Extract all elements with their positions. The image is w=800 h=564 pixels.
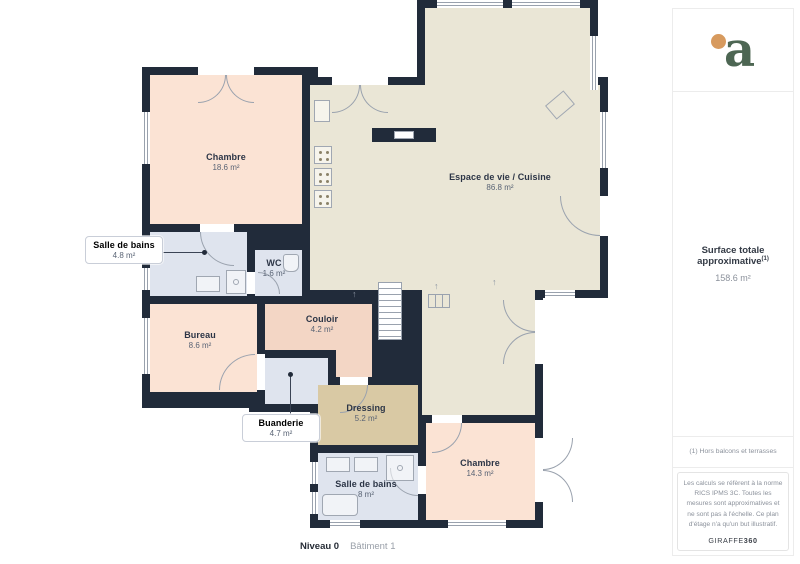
window	[310, 462, 318, 484]
door-arc	[543, 470, 573, 502]
room-area: 5.2 m²	[346, 414, 385, 423]
door-opening	[332, 77, 388, 85]
room-name: Chambre	[206, 152, 246, 162]
door-opening	[257, 354, 265, 390]
room-name: Espace de vie / Cuisine	[449, 172, 551, 182]
door-opening	[535, 438, 543, 502]
disclaimer-section: Les calculs se réfèrent à la norme RICS …	[673, 467, 793, 555]
surface-title-superscript: (1)	[762, 256, 769, 262]
room-label-couloir: Couloir 4.2 m²	[306, 314, 338, 334]
room-area: 18.6 m²	[206, 163, 246, 172]
room-name: WC	[263, 258, 286, 268]
footnote: (1) Hors balcons et terrasses	[673, 436, 793, 467]
arrow-up-icon: ↑	[492, 278, 497, 287]
door-opening	[200, 224, 234, 232]
room-area: 14.3 m²	[460, 469, 500, 478]
window	[330, 520, 360, 528]
callout-salle-de-bains-1: Salle de bains 4.8 m²	[85, 236, 163, 264]
stove-icon	[314, 168, 332, 186]
steps	[428, 294, 450, 308]
room-area: 4.8 m²	[93, 251, 155, 260]
room-name: Buanderie	[250, 418, 312, 428]
agency-logo: a	[673, 9, 793, 92]
door-opening	[247, 272, 255, 294]
room-label-wc: WC 1.6 m²	[263, 258, 286, 278]
surface-total-title: Surface totale approximative(1)	[679, 245, 787, 267]
stove-icon	[314, 190, 332, 208]
room-label-salle-de-bains-2: Salle de bains 8 m²	[335, 479, 396, 499]
window	[142, 112, 150, 164]
callout-leader	[158, 252, 204, 253]
kitchen-sink-icon	[314, 100, 330, 122]
room-name: Couloir	[306, 314, 338, 324]
window	[600, 112, 608, 168]
brand-name: GIRAFFE	[708, 536, 743, 545]
info-sidebar: a Surface totale approximative(1) 158.6 …	[672, 8, 794, 556]
door-opening	[418, 466, 426, 494]
staircase	[378, 282, 402, 340]
callout-buanderie: Buanderie 4.7 m²	[242, 414, 320, 442]
building-label: Bâtiment 1	[350, 541, 395, 552]
plan-footer: Niveau 0 Bâtiment 1	[300, 541, 396, 552]
room-label-espace-de-vie: Espace de vie / Cuisine 86.8 m²	[449, 172, 551, 192]
logo-mark: a	[711, 26, 755, 74]
room-area: 4.7 m²	[250, 429, 312, 438]
island-sink-icon	[394, 131, 414, 139]
window	[142, 318, 150, 374]
arrow-up-icon: ↑	[434, 282, 439, 291]
window	[142, 268, 150, 290]
room-name: Chambre	[460, 458, 500, 468]
room-name: Salle de bains	[93, 240, 155, 250]
room-name: Bureau	[184, 330, 216, 340]
giraffe360-logo: GIRAFFE360	[683, 536, 783, 545]
surface-total-value: 158.6 m²	[715, 273, 751, 283]
shower-drain-icon	[397, 465, 403, 471]
room-area: 8.6 m²	[184, 341, 216, 350]
sink-icon	[354, 457, 378, 472]
callout-dot	[288, 372, 293, 377]
window	[310, 492, 318, 514]
bathtub-icon	[196, 276, 220, 292]
room-name: Dressing	[346, 403, 385, 413]
door-opening	[198, 67, 254, 75]
disclaimer-box: Les calculs se réfèrent à la norme RICS …	[677, 472, 789, 551]
room-chambre-1	[150, 75, 302, 224]
window	[437, 0, 503, 8]
sink-drain-icon	[233, 279, 239, 285]
callout-dot	[202, 250, 207, 255]
room-label-chambre-2: Chambre 14.3 m²	[460, 458, 500, 478]
door-arc	[543, 438, 573, 470]
room-couloir	[336, 350, 372, 377]
floor-plan-page: ↑ ↑ ↑ Chambre 18.6 m² Espace de vie / Cu…	[0, 0, 800, 564]
window	[590, 36, 598, 90]
room-area: 1.6 m²	[263, 269, 286, 278]
sink-icon	[326, 457, 350, 472]
stove-icon	[314, 146, 332, 164]
logo-letter: a	[724, 22, 755, 78]
door-opening	[600, 196, 608, 236]
room-name: Salle de bains	[335, 479, 396, 489]
room-label-bureau: Bureau 8.6 m²	[184, 330, 216, 350]
door-opening	[340, 377, 368, 385]
window	[448, 520, 506, 528]
door-opening	[432, 415, 462, 423]
callout-leader	[290, 376, 291, 414]
surface-title-text: Surface totale approximative	[697, 245, 764, 267]
level-label: Niveau 0	[300, 541, 339, 552]
window	[512, 0, 580, 8]
room-label-dressing: Dressing 5.2 m²	[346, 403, 385, 423]
room-label-chambre-1: Chambre 18.6 m²	[206, 152, 246, 172]
surface-summary: Surface totale approximative(1) 158.6 m²	[673, 92, 793, 436]
room-espace-de-vie	[425, 8, 590, 93]
arrow-up-icon: ↑	[352, 290, 357, 299]
room-area: 8 m²	[335, 490, 396, 499]
room-area: 4.2 m²	[306, 325, 338, 334]
door-opening	[535, 300, 543, 364]
window	[545, 290, 575, 298]
logo-dot-icon	[711, 34, 726, 49]
brand-number: 360	[744, 536, 758, 545]
disclaimer-text: Les calculs se réfèrent à la norme RICS …	[683, 479, 783, 530]
room-area: 86.8 m²	[449, 183, 551, 192]
